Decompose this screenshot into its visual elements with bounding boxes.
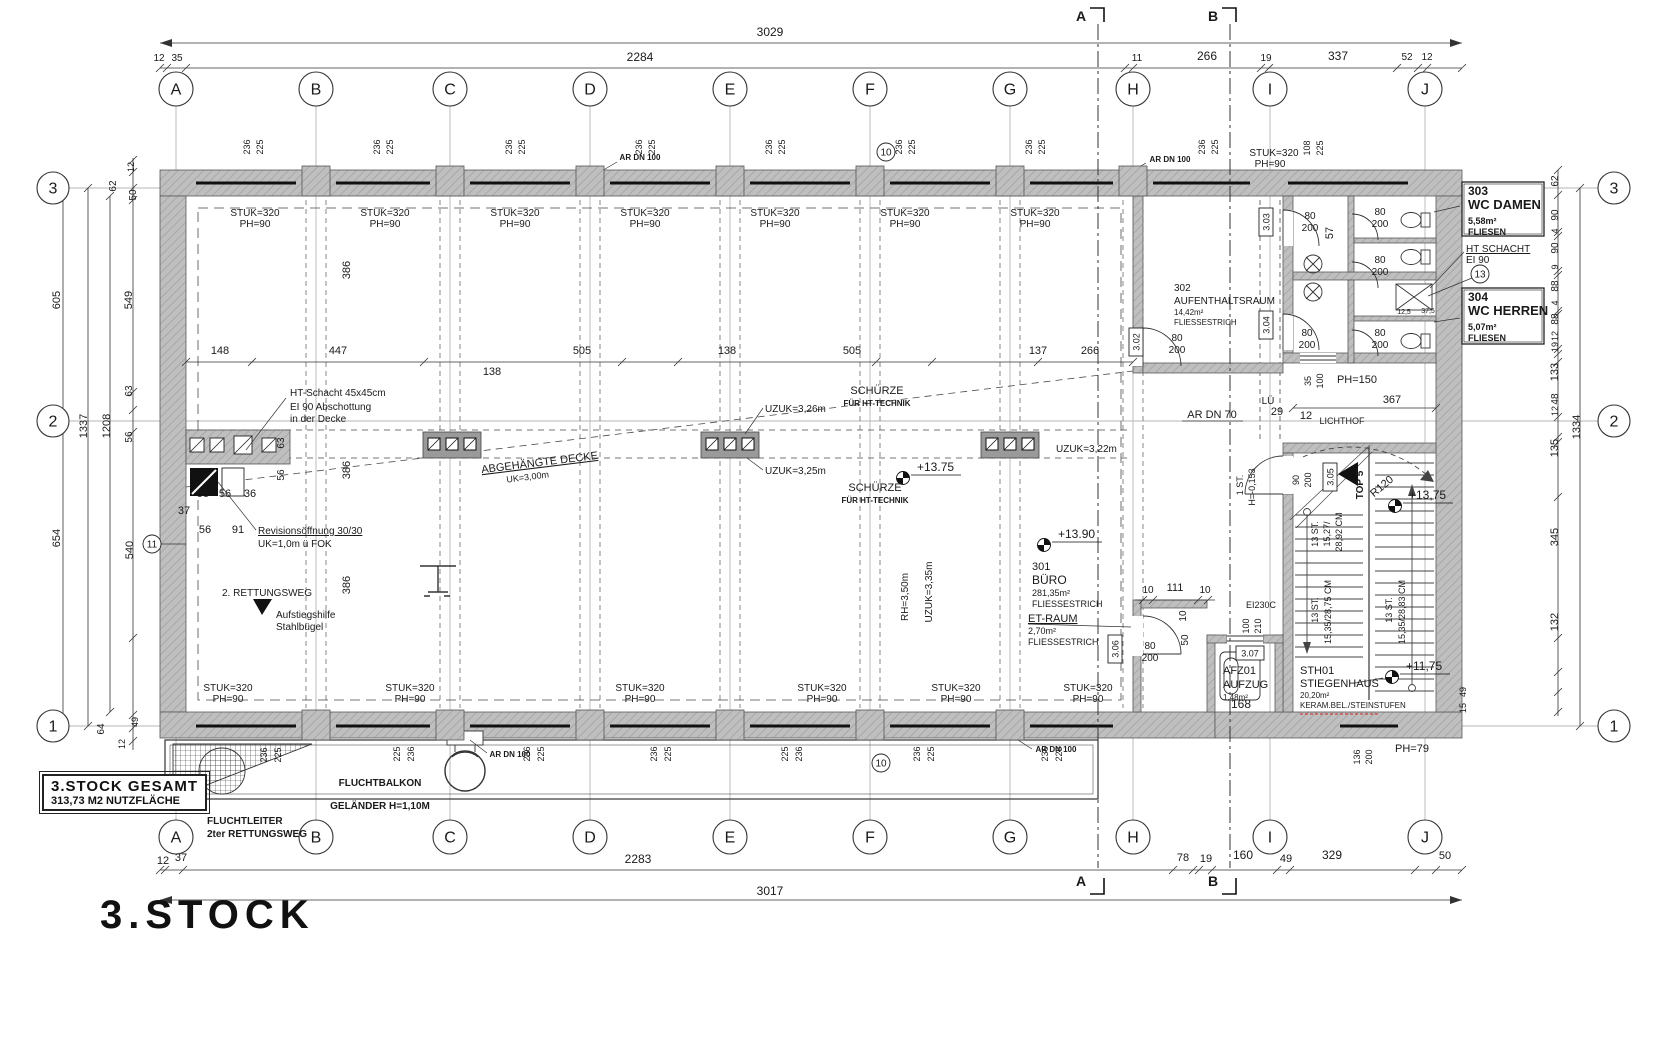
plan-label: 137 — [1029, 345, 1047, 357]
plan-label: 36 — [244, 488, 256, 500]
level-label: +13,75 — [1409, 488, 1446, 502]
grid-bubble-label: F — [865, 830, 875, 847]
vent-note: AR DN 100 — [1150, 155, 1191, 164]
plan-label: 236 — [1197, 139, 1207, 154]
plan-label: 80 — [1304, 211, 1316, 222]
plan-label: SCHÜRZE — [850, 385, 903, 397]
grid-bubble-label: 2 — [49, 414, 58, 431]
plan-label: 88 — [1550, 313, 1561, 325]
plan-label: 505 — [573, 345, 591, 357]
ann-ht-schacht-wc: HT SCHACHT — [1466, 244, 1530, 255]
plan-label: 136 — [1352, 749, 1362, 764]
plan-label: 80 — [1374, 328, 1386, 339]
vent-note: AR DN 100 — [620, 153, 661, 162]
ann-fluchtleiter: FLUCHTLEITER — [207, 816, 283, 827]
plan-label: STUK=320 — [1063, 683, 1113, 694]
summary-box: 3.STOCK GESAMT 313,73 M2 NUTZFLÄCHE — [42, 774, 207, 811]
plan-label: 236 — [406, 746, 416, 761]
plan-label: PH=90 — [807, 694, 838, 705]
dim-bottom-total: 3017 — [757, 884, 784, 898]
grid-bubble-label: 1 — [49, 719, 58, 736]
plan-label: EI 90 — [1466, 255, 1490, 266]
room-info-line: 5,58m² — [1468, 216, 1497, 226]
plan-label: 2283 — [625, 852, 652, 866]
plan-label: 13 ST. — [1384, 597, 1394, 623]
plan-label: PH=90 — [1255, 159, 1286, 170]
plan-label: 200 — [1372, 267, 1389, 278]
plan-label: STUK=320 — [360, 208, 410, 219]
plan-label: 2,70m² — [1028, 626, 1056, 636]
grid-bubble-label: A — [171, 82, 182, 99]
plan-label: 386 — [341, 461, 353, 479]
plan-label: 225 — [1037, 139, 1047, 154]
plan-label: 225 — [536, 746, 546, 761]
plan-label: STUK=320 — [880, 208, 930, 219]
plan-label: 50 — [128, 189, 139, 201]
plan-label: 160 — [1233, 848, 1253, 862]
plan-label: 55 — [197, 488, 209, 500]
plan-label: FLIESSESTRICH — [1028, 637, 1099, 647]
plan-label: 56 — [276, 469, 287, 481]
plan-label: 168 — [1231, 697, 1251, 711]
plan-label: PH=90 — [625, 694, 656, 705]
plan-label: 15,35/28,83 CM — [1397, 580, 1407, 644]
plan-label: 37 — [178, 505, 190, 517]
grid-bubble-label: A — [171, 830, 182, 847]
pillar — [996, 710, 1024, 740]
plan-label: 236 — [649, 746, 659, 761]
room-info-line: WC DAMEN — [1468, 197, 1541, 212]
plan-label: 52 — [1401, 52, 1413, 63]
room-et: ET-RAUM — [1028, 613, 1078, 625]
grid-bubble-label: H — [1127, 82, 1139, 99]
plan-label: 12 — [1421, 52, 1433, 63]
plan-label: 90 — [1291, 475, 1301, 485]
plan-label: UZUK=3,26m — [765, 404, 826, 415]
door-tag-3.04: 3.04 — [1259, 311, 1273, 339]
plan-label: 200 — [1303, 472, 1313, 487]
plan-label: STUK=320 — [230, 208, 280, 219]
plan-label: 148 — [211, 345, 229, 357]
plan-label: AUFENTHALTSRAUM — [1174, 296, 1275, 307]
plan-label: 2284 — [627, 50, 654, 64]
plan-label: 225 — [1210, 139, 1220, 154]
plan-label: 19 — [1260, 53, 1272, 64]
pillar — [302, 166, 330, 196]
plan-label: PH=90 — [395, 694, 426, 705]
room-info-line: FLIESEN — [1468, 227, 1506, 237]
plan-label: 19 — [1200, 853, 1212, 865]
canvas — [0, 0, 1663, 1042]
plan-label: 266 — [1081, 345, 1099, 357]
grid-bubble-label: E — [725, 82, 736, 99]
plan-label: 78 — [1177, 852, 1189, 864]
level-label: +13.90 — [1058, 527, 1095, 541]
plan-label: 4 — [1550, 300, 1560, 305]
plan-label: STUK=320 — [1249, 148, 1299, 159]
plan-label: 225 — [273, 747, 283, 762]
plan-label: 225 — [663, 746, 673, 761]
pillar — [576, 710, 604, 740]
plan-label: Aufstiegshilfe — [276, 610, 336, 621]
plan-label: 100 — [1241, 618, 1251, 633]
room-lichthof: LICHTHOF — [1320, 416, 1366, 426]
plan-label: 236 — [504, 139, 514, 154]
plan-label: 19 — [1550, 342, 1560, 352]
plan-label: STUK=320 — [750, 208, 800, 219]
plan-label: 10 — [1199, 585, 1211, 596]
plan-label: STUK=320 — [615, 683, 665, 694]
grid-bubble-label: I — [1268, 82, 1272, 99]
svg-text:3.02: 3.02 — [1132, 333, 1142, 351]
plan-label: 14,42m² — [1174, 308, 1204, 317]
plan-label: 329 — [1322, 848, 1342, 862]
plan-label: 80 — [1374, 207, 1386, 218]
plan-label: 12 — [157, 855, 169, 867]
plan-label: FÜR HT-TECHNIK — [841, 496, 908, 505]
grid-bubble-label: G — [1004, 830, 1016, 847]
plan-label: 386 — [341, 261, 353, 279]
plan-label: 225 — [907, 139, 917, 154]
plan-label: 200 — [1372, 340, 1389, 351]
plan-label: PH=150 — [1337, 374, 1377, 386]
grid-bubble-label: D — [584, 82, 596, 99]
plan-label: 10 — [1178, 610, 1189, 622]
door-tag-3.02: 3.02 — [1129, 328, 1143, 356]
plan-label: 210 — [1253, 618, 1263, 633]
plan-label: PH=90 — [240, 219, 271, 230]
ann-revision: Revisionsöffnung 30/30 — [258, 526, 363, 537]
plan-label: 62 — [1550, 175, 1561, 187]
plan-label: 90 — [1550, 209, 1561, 221]
plan-label: 15,27/ — [1322, 521, 1332, 547]
plan-label: 80 — [1374, 255, 1386, 266]
plan-label: H=-0,153 — [1247, 468, 1257, 505]
room-info-line: 304 — [1468, 290, 1488, 304]
plan-label: 37 — [175, 852, 187, 864]
plan-label: 56 — [199, 524, 211, 536]
plan-label: in der Decke — [290, 414, 347, 425]
plan-label: PH=90 — [630, 219, 661, 230]
room-info-line: FLIESEN — [1468, 333, 1506, 343]
plan-label: 225 — [255, 139, 265, 154]
vent-note: AR DN 100 — [1036, 745, 1077, 754]
door-tag-3.07: 3.07 — [1236, 646, 1264, 660]
plan-label: 10 — [1142, 585, 1154, 596]
plan-label: 386 — [341, 576, 353, 594]
plan-label: 654 — [51, 529, 63, 547]
plan-label: STUK=320 — [385, 683, 435, 694]
plan-label: 337 — [1328, 49, 1348, 63]
plan-label: UZUK=3,25m — [765, 466, 826, 477]
grid-bubble-label: E — [725, 830, 736, 847]
summary-subtitle: 313,73 M2 NUTZFLÄCHE — [51, 795, 198, 807]
plan-label: 50 — [1180, 634, 1191, 646]
grid-bubble-label: J — [1421, 830, 1429, 847]
plan-label: 133 — [1549, 363, 1561, 381]
plan-label: 200 — [1142, 653, 1159, 664]
plan-label: 48 — [1550, 393, 1561, 405]
plan-label: 367 — [1383, 394, 1401, 406]
plan-label: PH=90 — [1073, 694, 1104, 705]
plan-label: 132 — [1549, 613, 1561, 631]
pillar — [716, 710, 744, 740]
plan-label: 266 — [1197, 49, 1217, 63]
summary-title: 3.STOCK GESAMT — [51, 778, 198, 795]
svg-text:3.04: 3.04 — [1262, 316, 1272, 334]
plan-label: 345 — [1549, 528, 1561, 546]
plan-label: 236 — [259, 747, 269, 762]
plan-label: 15 — [1458, 703, 1468, 713]
floor-plan-svg: AABBCCDDEEFFGGHHIIJJ332211AABB10101113+1… — [0, 0, 1663, 1042]
ann-rettungsweg: 2. RETTUNGSWEG — [222, 588, 312, 599]
circle-marker-label: 11 — [147, 540, 158, 551]
plan-label: FLIESSESTRICH — [1174, 318, 1237, 327]
plan-label: 111 — [1167, 582, 1184, 594]
grid-bubble-label: F — [865, 82, 875, 99]
plan-label: 225 — [780, 746, 790, 761]
plan-label: 64 — [96, 723, 107, 735]
svg-text:3.05: 3.05 — [1326, 468, 1336, 486]
door-tag-3.06: 3.06 — [1108, 635, 1122, 663]
door-tag-3.03: 3.03 — [1259, 208, 1273, 236]
circle-marker-label: 10 — [880, 148, 892, 159]
plan-label: PH=90 — [890, 219, 921, 230]
room-info-line: WC HERREN — [1468, 303, 1548, 318]
plan-label: 12 — [117, 739, 127, 749]
plan-label: KERAM.BEL./STEINSTUFEN — [1300, 701, 1406, 710]
plan-label: 57 — [1324, 227, 1336, 239]
plan-label: 200 — [1372, 219, 1389, 230]
pillar — [436, 166, 464, 196]
plan-label: STUK=320 — [490, 208, 540, 219]
plan-label: 108 — [1302, 140, 1312, 155]
grid-bubble-label: J — [1421, 82, 1429, 99]
plan-label: BÜRO — [1032, 573, 1067, 587]
grid-bubble-label: B — [311, 82, 322, 99]
plan-label: 1334 — [1571, 415, 1583, 439]
plan-label: 12 — [1550, 331, 1560, 341]
level-label: +13.75 — [917, 460, 954, 474]
section-marker-B: B — [1208, 873, 1218, 889]
plan-label: 447 — [329, 345, 347, 357]
plan-label: STUK=320 — [1010, 208, 1060, 219]
plan-label: 37,5 — [1421, 308, 1435, 315]
plan-label: 50 — [1439, 850, 1451, 862]
plan-label: 540 — [124, 541, 136, 559]
plan-label: 2ter RETTUNGSWEG — [207, 829, 307, 840]
section-marker-A: A — [1076, 8, 1086, 24]
plan-label: 225 — [517, 139, 527, 154]
plan-label: 91 — [232, 524, 244, 536]
pillar — [716, 166, 744, 196]
plan-label: UK=1,0m ü FOK — [258, 539, 332, 550]
plan-label: 236 — [764, 139, 774, 154]
vent-note: AR DN 70 — [1187, 409, 1237, 421]
ann-balkon: FLUCHTBALKON — [339, 778, 422, 789]
circle-marker-label: 13 — [1474, 270, 1486, 281]
plan-label: Stahlbügel — [276, 622, 323, 633]
plan-label: 225 — [1315, 140, 1325, 155]
room-info-line: 5,07m² — [1468, 322, 1497, 332]
ann-gelaender: GELÄNDER H=1,10M — [330, 799, 430, 812]
plan-label: 20,20m² — [1300, 691, 1330, 700]
plan-label: AUFZUG — [1223, 679, 1268, 691]
plan-label: 549 — [123, 291, 135, 309]
pillar — [856, 710, 884, 740]
plan-label: 88 — [1550, 280, 1561, 292]
plan-label: 200 — [1169, 345, 1186, 356]
plan-label: 138 — [483, 366, 501, 378]
room-info-line: 303 — [1468, 184, 1488, 198]
page-title: 3.STOCK — [100, 893, 315, 938]
plan-label: 236 — [894, 139, 904, 154]
plan-label: TOP 5 — [1355, 470, 1366, 499]
plan-label: 28,92 CM — [1334, 512, 1344, 551]
plan-label: 80 — [1144, 641, 1156, 652]
plan-label: 225 — [392, 746, 402, 761]
plan-label: 236 — [794, 746, 804, 761]
pillar — [1119, 166, 1147, 196]
pillar — [856, 166, 884, 196]
plan-label: PH=90 — [213, 694, 244, 705]
plan-label: PH=90 — [760, 219, 791, 230]
grid-bubble-label: H — [1127, 830, 1139, 847]
plan-label: 100 — [1315, 373, 1325, 388]
beam-block-g — [981, 432, 1039, 458]
plan-label: PH=79 — [1395, 743, 1429, 755]
plan-label: 13 ST. — [1310, 597, 1320, 623]
plan-label: UZUK=3,35m — [924, 562, 935, 623]
plan-label: 49 — [1458, 687, 1468, 697]
circle-marker-label: 10 — [875, 759, 887, 770]
plan-label: 49 — [1280, 853, 1292, 865]
door-tag-3.05: 3.05 — [1323, 463, 1337, 491]
plan-label: 1208 — [101, 414, 113, 438]
grid-bubble-label: 3 — [1610, 181, 1619, 198]
plan-label: PH=90 — [500, 219, 531, 230]
plan-label: 56 — [124, 431, 135, 443]
dim-top-total: 3029 — [757, 25, 784, 39]
plan-label: 505 — [843, 345, 861, 357]
plan-label: EI 90 Abschottung — [290, 402, 371, 413]
plan-label: 12 — [126, 162, 136, 172]
plan-label: 35 — [171, 53, 183, 64]
plan-label: 49 — [130, 717, 140, 727]
plan-label: 12 — [153, 53, 165, 64]
plan-label: 200 — [1299, 340, 1316, 351]
plan-label: 9 — [1550, 264, 1560, 269]
plan-label: 12 — [1300, 410, 1312, 422]
plan-label: 80 — [1171, 333, 1183, 344]
plan-label: 200 — [1364, 749, 1374, 764]
plan-label: PH=90 — [370, 219, 401, 230]
level-label: +11,75 — [1406, 659, 1442, 673]
plan-label: STUK=320 — [203, 683, 253, 694]
grid-bubble-label: 2 — [1610, 414, 1619, 431]
svg-text:3.07: 3.07 — [1241, 649, 1259, 659]
plan-label: PH=90 — [941, 694, 972, 705]
plan-label: FÜR HT-TECHNIK — [843, 399, 910, 408]
pillar — [576, 166, 604, 196]
plan-label: 11 — [1132, 53, 1143, 64]
plan-label: STUK=320 — [931, 683, 981, 694]
grid-bubble-label: C — [444, 82, 456, 99]
grid-bubble-label: G — [1004, 82, 1016, 99]
plan-label: 200 — [1302, 223, 1319, 234]
grid-bubble-label: D — [584, 830, 596, 847]
pillar — [436, 710, 464, 740]
plan-label: 225 — [777, 139, 787, 154]
beam-block-c — [423, 432, 481, 458]
plan-label: 236 — [372, 139, 382, 154]
plan-label: 56 — [219, 488, 231, 500]
plan-label: 236 — [1024, 139, 1034, 154]
plan-label: 13 ST. — [1310, 521, 1320, 547]
plan-label: FLIESSESTRICH — [1032, 599, 1103, 609]
beam-block-e — [701, 432, 759, 458]
vent-note: AR DN 100 — [490, 750, 531, 759]
plan-label: UZUK=3,22m — [1056, 444, 1117, 455]
plan-label: 80 — [1301, 328, 1313, 339]
plan-label: 135 — [1549, 439, 1561, 457]
svg-text:3.06: 3.06 — [1111, 640, 1121, 658]
plan-label: 1 ST. — [1235, 475, 1245, 496]
plan-label: 225 — [385, 139, 395, 154]
pillar — [996, 166, 1024, 196]
section-marker-A: A — [1076, 873, 1086, 889]
plan-label: RH=3,50m — [900, 573, 911, 621]
plan-label: STUK=320 — [620, 208, 670, 219]
plan-label: 12,5 — [1397, 309, 1411, 316]
plan-label: 63 — [124, 385, 135, 397]
plan-label: 15,35/28,75 CM — [1323, 580, 1333, 644]
plan-label: STIEGENHAUS — [1300, 678, 1379, 690]
room-sth01: STH01 — [1300, 665, 1334, 677]
plan-label: 12 — [1550, 406, 1560, 416]
pillar — [302, 710, 330, 740]
plan-label: EI230C — [1246, 600, 1277, 610]
ann-ht-schacht: HT-Schacht 45x45cm — [290, 388, 386, 399]
plan-label: 90 — [1550, 242, 1561, 254]
plan-label: PH=90 — [1020, 219, 1051, 230]
room-301: 301 — [1032, 561, 1050, 573]
svg-text:3.03: 3.03 — [1262, 213, 1272, 231]
grid-bubble-label: B — [311, 830, 322, 847]
plan-label: 236 — [912, 746, 922, 761]
plan-label: STUK=320 — [797, 683, 847, 694]
room-afz01: AFZ01 — [1223, 665, 1256, 677]
plan-label: 62 — [108, 180, 119, 192]
grid-bubble-label: C — [444, 830, 456, 847]
plan-label: 35 — [1303, 376, 1313, 386]
grid-bubble-label: 1 — [1610, 719, 1619, 736]
plan-label: 236 — [242, 139, 252, 154]
plan-label: 605 — [51, 291, 63, 309]
floor-plan-page: AABBCCDDEEFFGGHHIIJJ332211AABB10101113+1… — [0, 0, 1663, 1042]
grid-bubble-label: I — [1268, 830, 1272, 847]
plan-label: 225 — [926, 746, 936, 761]
plan-label: 1337 — [78, 414, 90, 438]
plan-label: 281,35m² — [1032, 588, 1070, 598]
plan-label: SCHÜRZE — [848, 482, 901, 494]
plan-label: 138 — [718, 345, 736, 357]
section-marker-B: B — [1208, 8, 1218, 24]
room-302: 302 — [1174, 283, 1191, 294]
grid-bubble-label: 3 — [49, 181, 58, 198]
plan-label: 63 — [276, 437, 287, 449]
plan-label: 29 — [1271, 406, 1283, 418]
